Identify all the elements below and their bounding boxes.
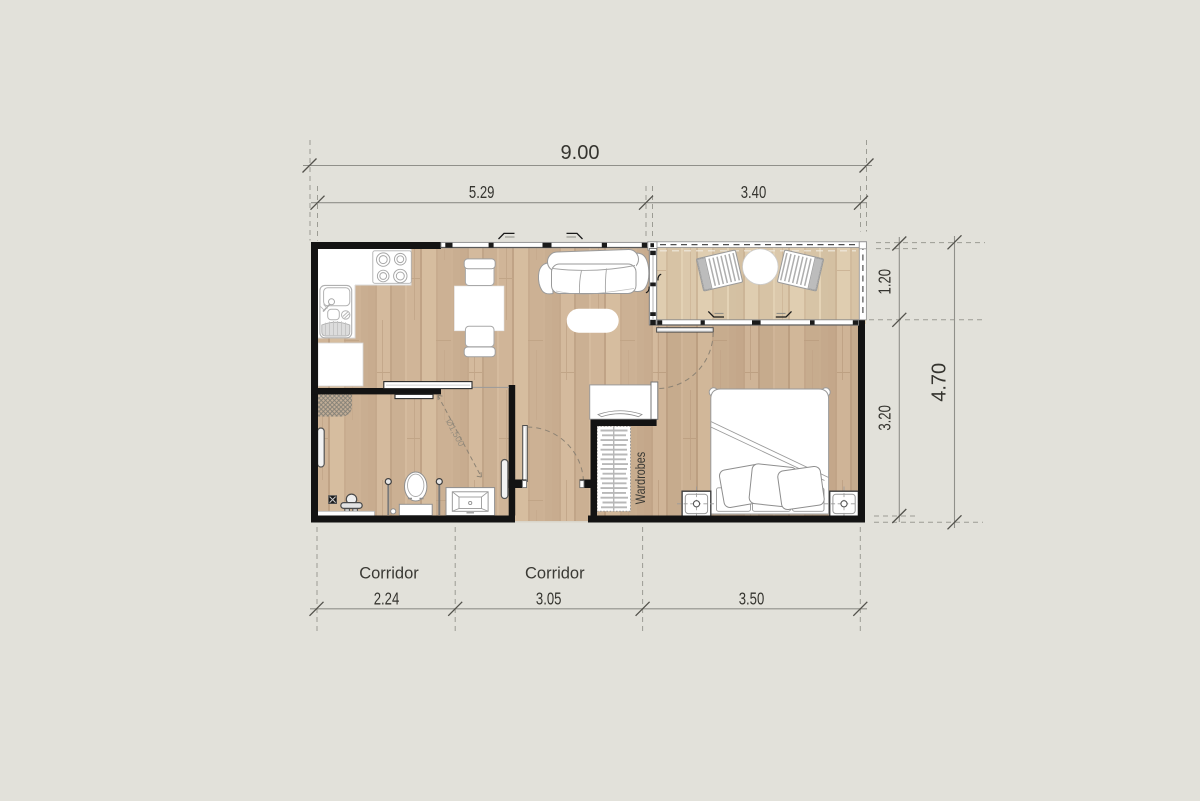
svg-text:3.40: 3.40: [741, 183, 767, 202]
svg-text:1.20: 1.20: [876, 269, 895, 295]
svg-text:9.00: 9.00: [561, 142, 600, 164]
svg-text:5.29: 5.29: [469, 183, 495, 202]
svg-text:3.05: 3.05: [536, 590, 562, 609]
svg-text:4.70: 4.70: [929, 363, 951, 402]
svg-text:2.24: 2.24: [374, 590, 400, 609]
svg-text:Corridor: Corridor: [525, 564, 585, 582]
svg-text:Wardrobes: Wardrobes: [633, 452, 648, 504]
svg-text:3.20: 3.20: [876, 405, 895, 431]
svg-text:Corridor: Corridor: [359, 564, 419, 582]
svg-text:3.50: 3.50: [739, 590, 765, 609]
